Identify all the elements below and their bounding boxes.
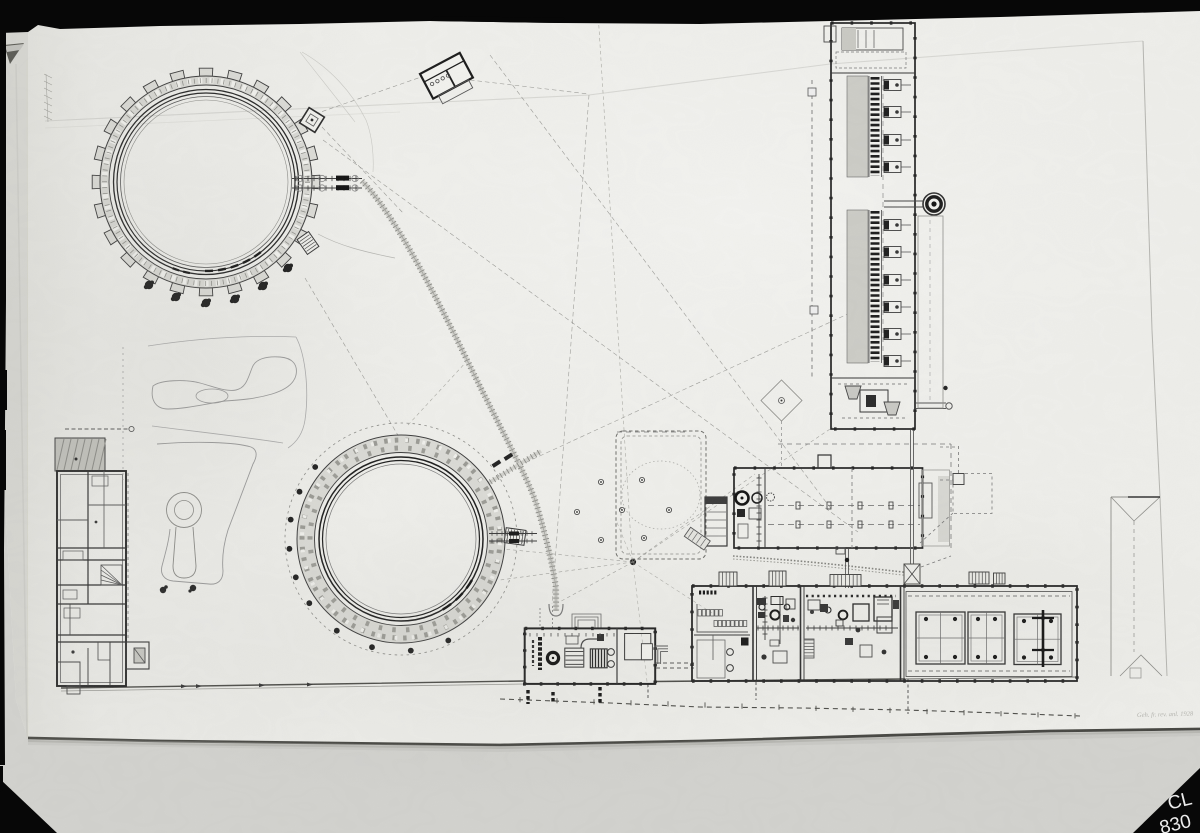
svg-text:Geh. fr. rev. anl. 1928: Geh. fr. rev. anl. 1928	[1137, 711, 1194, 719]
